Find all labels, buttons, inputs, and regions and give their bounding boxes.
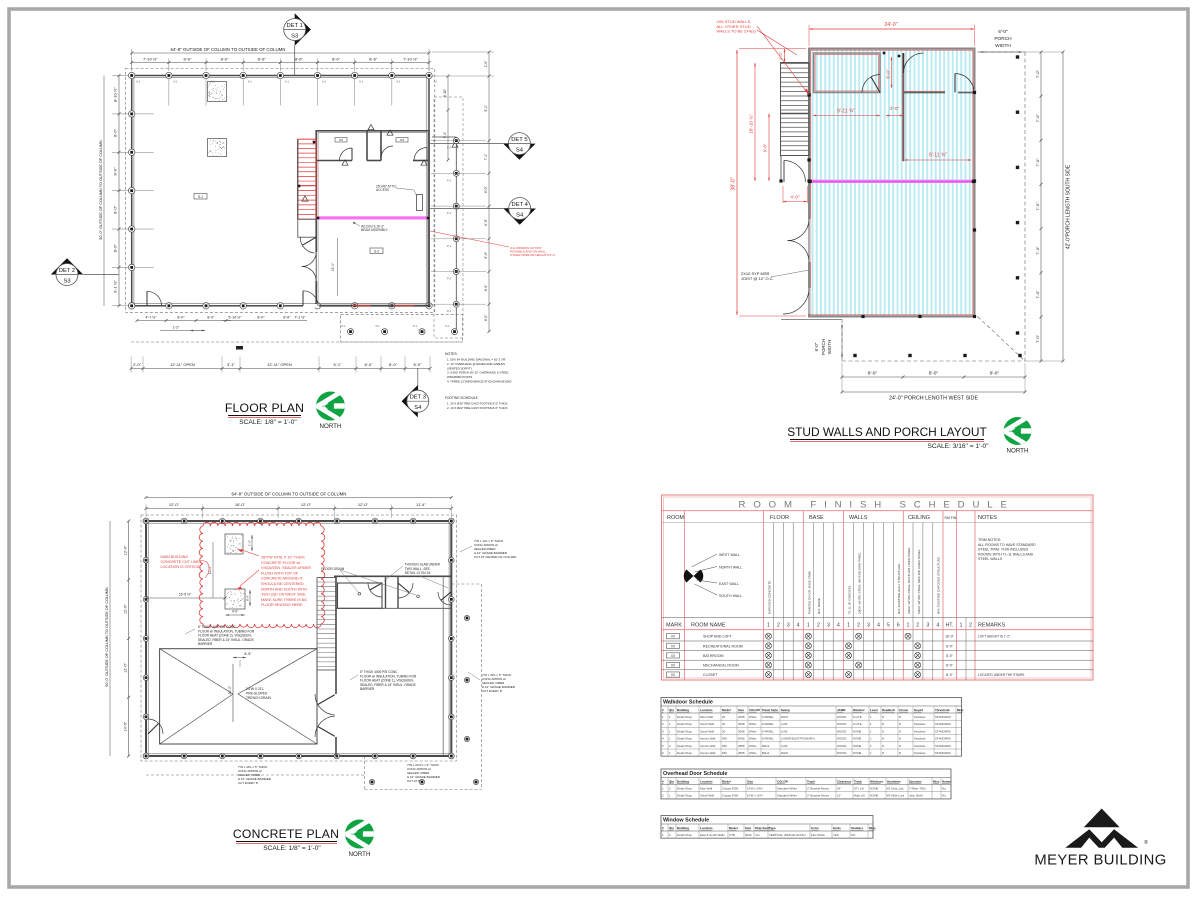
svg-text:SCALE: 3/16" = 1'-0": SCALE: 3/16" = 1'-0" [927, 443, 989, 450]
svg-text:8'-0": 8'-0" [113, 205, 118, 214]
svg-text:MECHANICAL ROOM: MECHANICAL ROOM [703, 664, 739, 668]
svg-text:4'-7 ½": 4'-7 ½" [145, 316, 157, 320]
svg-text:CEILING: CEILING [908, 515, 930, 521]
svg-text:Yes: Yes [755, 833, 760, 837]
svg-text:12'-0": 12'-0" [169, 502, 180, 507]
svg-text:STL Lift: STL Lift [854, 787, 864, 791]
svg-text:WEST WALL: WEST WALL [719, 553, 740, 557]
svg-text:8'-0": 8'-0" [946, 673, 954, 677]
svg-text:NONE: NONE [853, 729, 861, 733]
svg-text:LHIS: LHIS [781, 744, 787, 748]
svg-text:9'-1": 9'-1" [484, 104, 488, 111]
svg-text:N/A: NONE: N/A: NONE [817, 598, 821, 614]
svg-text:S4: S4 [414, 405, 422, 411]
svg-text:No: No [942, 787, 946, 791]
svg-text:DET 1: DET 1 [287, 23, 303, 29]
svg-text:S3: S3 [291, 34, 298, 40]
svg-text:CONCRETE FLOOR w/: CONCRETE FLOOR w/ [261, 561, 301, 565]
svg-text:38'-0": 38'-0" [731, 177, 737, 190]
svg-text:8'-0": 8'-0" [990, 371, 1000, 376]
svg-text:Kwickset: Kwickset [914, 744, 926, 748]
svg-text:Standard White: Standard White [777, 787, 797, 791]
svg-text:930: 930 [722, 751, 727, 755]
svg-text:3'-1": 3'-1" [227, 362, 236, 367]
svg-text:White: White [749, 722, 757, 726]
svg-text:NONE: NONE [870, 794, 878, 798]
svg-text:1: 1 [847, 623, 850, 629]
svg-text:4. THREE 12"WIND BRACE AT E: 4. THREE 12"WIND BRACE AT EXCHANGE END [447, 380, 511, 384]
svg-text:Jack Shaft: Jack Shaft [909, 794, 923, 798]
svg-text:Kwickset: Kwickset [914, 737, 926, 741]
svg-text:P-1: P-1 [445, 324, 450, 328]
svg-text:East Wall: East Wall [700, 787, 712, 791]
svg-text:MEYER BUILDING: MEYER BUILDING [1034, 853, 1166, 869]
svg-text:COLOR: COLOR [777, 780, 789, 784]
svg-text:16'-5 ½": 16'-5 ½" [179, 593, 192, 597]
svg-text:6-PANEL: 6-PANEL [762, 737, 774, 741]
svg-text:Detail Shop: Detail Shop [677, 722, 692, 726]
svg-text:6-PANEL: 6-PANEL [762, 715, 774, 719]
svg-text:8'-0": 8'-0" [946, 664, 954, 668]
svg-text:8'-0": 8'-0" [365, 362, 374, 367]
svg-text:STUD WALLS AND PORCH LAYOUT: STUD WALLS AND PORCH LAYOUT [787, 425, 987, 439]
svg-text:N: N [882, 737, 884, 741]
svg-text:Hardware: Hardware [887, 780, 901, 784]
svg-text:WOOD: WOOD [837, 722, 846, 726]
svg-text:PAINTED OR GR. BASE TRIM: PAINTED OR GR. BASE TRIM [807, 571, 811, 614]
svg-text:Kwickset: Kwickset [914, 729, 926, 733]
svg-text:2: 2 [857, 623, 860, 629]
svg-text:Misc: Misc [869, 826, 876, 830]
svg-text:#2 Strut_Lok: #2 Strut_Lok [887, 787, 904, 791]
svg-text:DET 3: DET 3 [410, 395, 426, 401]
svg-text:Overhead Door Schedule: Overhead Door Schedule [663, 771, 727, 777]
svg-text:T1-11 (8" GROOVE): T1-11 (8" GROOVE) [848, 586, 852, 614]
svg-text:N: N [899, 715, 901, 719]
svg-text:6'-1": 6'-1" [334, 362, 343, 367]
svg-text:NONE: NONE [870, 787, 878, 791]
svg-text:A-1: A-1 [359, 80, 364, 84]
svg-text:8'-0": 8'-0" [332, 57, 341, 62]
svg-text:T-Rider T501: T-Rider T501 [909, 787, 926, 791]
svg-text:Detail Shop: Detail Shop [677, 744, 692, 748]
svg-text:29GA. WHITE STEEL MAX-RIB LINE: 29GA. WHITE STEEL MAX-RIB LINER PANEL [917, 549, 921, 614]
svg-text:Qty: Qty [669, 826, 674, 830]
svg-text:12": 12" [837, 794, 841, 798]
svg-text:CUT EVERY 8': CUT EVERY 8' [238, 781, 259, 785]
svg-text:WOOD: WOOD [837, 729, 846, 733]
svg-text:N: N [899, 729, 901, 733]
svg-text:No: No [942, 794, 946, 798]
svg-text:2" Bracket Mount: 2" Bracket Mount [807, 794, 829, 798]
svg-text:South Wall: South Wall [700, 722, 714, 726]
svg-text:Detail Shop: Detail Shop [677, 833, 692, 837]
svg-text:MARK: MARK [666, 623, 682, 629]
svg-text:NORTH AND SOUTH WITH: NORTH AND SOUTH WITH [261, 587, 307, 591]
svg-text:White: White [749, 737, 757, 741]
svg-text:42'-0"PORCH LENGTH SOUTH SIDE: 42'-0"PORCH LENGTH SOUTH SIDE [1066, 164, 1072, 249]
svg-text:CLOSET: CLOSET [703, 673, 718, 677]
svg-text:8'-0": 8'-0" [221, 57, 230, 62]
svg-text:9'-11 ¾": 9'-11 ¾" [837, 109, 855, 115]
svg-text:12'-0": 12'-0" [124, 662, 128, 672]
svg-text:8'-6": 8'-6" [295, 57, 304, 62]
svg-text:BATHROOM: BATHROOM [703, 654, 724, 658]
svg-text:DET 4: DET 4 [512, 202, 529, 208]
svg-text:Model: Model [722, 708, 731, 712]
svg-text:Track: Track [854, 780, 862, 784]
svg-text:A-1: A-1 [248, 80, 253, 84]
svg-text:3068: 3068 [738, 715, 745, 719]
svg-text:12'-0": 12'-0" [301, 502, 312, 507]
svg-text:2: 2 [916, 623, 919, 629]
svg-text:Blank: Blank [762, 744, 770, 748]
svg-text:P-1: P-1 [447, 309, 452, 313]
svg-text:Grids: Grids [833, 826, 841, 830]
svg-text:N: N [882, 729, 884, 733]
svg-text:SCALE: 1/8" = 1'-0": SCALE: 1/8" = 1'-0" [263, 845, 321, 852]
svg-text:Blank: Blank [762, 751, 770, 755]
svg-text:VERTICAL (SINGLE HUNG): VERTICAL (SINGLE HUNG) [769, 833, 806, 837]
svg-text:WOOD: WOOD [837, 751, 846, 755]
svg-text:Location: Location [700, 826, 713, 830]
svg-text:RHIS: RHIS [781, 715, 788, 719]
svg-text:P-1: P-1 [447, 178, 452, 182]
svg-text:Operator: Operator [909, 780, 923, 784]
svg-text:4: 4 [877, 623, 880, 629]
svg-text:2. 10 X Ø22" PRE-CAST FOOTI: 2. 10 X Ø22" PRE-CAST FOOTINGS 6" THICK [447, 406, 508, 410]
svg-text:6-PANEL: 6-PANEL [762, 722, 774, 726]
svg-text:TRIM NOTES:: TRIM NOTES: [978, 538, 1001, 542]
svg-text:White: White [749, 751, 757, 755]
svg-text:3: 3 [787, 623, 790, 629]
svg-text:East & South Walls: East & South Walls [700, 833, 725, 837]
svg-text:P-1: P-1 [341, 324, 346, 328]
svg-text:9'-8": 9'-8" [763, 143, 768, 152]
svg-text:A-1: A-1 [173, 80, 178, 84]
svg-text:STANDARD: STANDARD [935, 715, 951, 719]
svg-text:Track: Track [807, 780, 815, 784]
svg-text:NORTH: NORTH [320, 423, 342, 430]
svg-text:8'-10": 8'-10" [443, 89, 447, 97]
svg-text:2. 12" OVERHANG @ EAVES AND: 2. 12" OVERHANG @ EAVES AND GABLES [447, 362, 505, 366]
svg-text:7'-0": 7'-0" [1035, 246, 1040, 255]
svg-text:8'-0": 8'-0" [484, 218, 488, 225]
svg-text:2: 2 [969, 623, 972, 629]
svg-text:ACCESS: ACCESS [376, 188, 389, 192]
svg-text:CONCRETE CUT LINES,: CONCRETE CUT LINES, [161, 560, 203, 564]
svg-text:FOOTING SCHEDULE: FOOTING SCHEDULE [445, 396, 478, 400]
svg-text:FLUSH WITH TOP OF: FLUSH WITH TOP OF [261, 571, 299, 575]
svg-text:PRE-SLOPED: PRE-SLOPED [246, 691, 268, 695]
svg-text:6-PANEL: 6-PANEL [762, 729, 774, 733]
svg-text:N: N [899, 751, 901, 755]
svg-text:Detail Shop: Detail Shop [677, 737, 692, 741]
svg-text:20: 20 [722, 715, 726, 719]
svg-text:DET 5: DET 5 [511, 137, 527, 143]
svg-text:Kwickset: Kwickset [914, 715, 926, 719]
svg-text:4: 4 [797, 623, 800, 629]
svg-text:8'-6": 8'-6" [246, 595, 250, 601]
svg-text:Location: Location [700, 708, 713, 712]
svg-text:Location: Location [700, 780, 713, 784]
svg-text:N: N [899, 737, 901, 741]
svg-text:12'-11" OPEN: 12'-11" OPEN [170, 362, 195, 367]
svg-text:1: 1 [767, 623, 770, 629]
svg-text:4'-0": 4'-0" [790, 195, 800, 200]
svg-text:Building: Building [677, 826, 689, 830]
svg-text:6068: 6068 [738, 737, 745, 741]
svg-text:8'-0": 8'-0" [868, 371, 878, 376]
svg-text:FLOOR HEATING HERE.: FLOOR HEATING HERE. [261, 603, 303, 607]
svg-text:Misc: Misc [957, 708, 964, 712]
svg-text:CUT AT CENTER OF COLUMN: CUT AT CENTER OF COLUMN [474, 555, 516, 559]
svg-text:ROOM: ROOM [667, 515, 685, 521]
svg-text:White: White [749, 744, 757, 748]
svg-text:28'4"W X4'5L X 10" THICK: 28'4"W X4'5L X 10" THICK [261, 556, 305, 560]
svg-text:HT.: HT. [946, 623, 954, 629]
svg-text:A-1: A-1 [285, 80, 290, 84]
svg-text:STEEL WALLS: STEEL WALLS [978, 557, 1003, 561]
svg-text:3068: 3068 [738, 729, 745, 733]
svg-text:12'-0": 12'-0" [358, 502, 369, 507]
svg-text:6'-0": 6'-0" [814, 342, 819, 351]
svg-text:High Lift: High Lift [854, 794, 865, 798]
svg-text:NONE: NONE [853, 744, 861, 748]
svg-text:SHOULD BE CENTERED: SHOULD BE CENTERED [261, 582, 304, 586]
svg-text:24"W X 21'L: 24"W X 21'L [246, 687, 264, 691]
svg-text:9'-4": 9'-4" [443, 132, 447, 138]
svg-text:LOCATED UNDER THE STAIRS: LOCATED UNDER THE STAIRS [978, 673, 1024, 677]
svg-text:(VENTED SOFFIT): (VENTED SOFFIT) [447, 366, 472, 370]
svg-text:Shutters: Shutters [851, 826, 864, 830]
svg-text:VISQUEEN, SEALER &FIBER: VISQUEEN, SEALER &FIBER [261, 566, 311, 570]
svg-text:RHIS: RHIS [781, 751, 788, 755]
svg-text:N/A: EXISTING EXPOSED STRUCTUR: N/A: EXISTING EXPOSED STRUCTURE [937, 557, 941, 614]
svg-text:BASE: BASE [809, 515, 824, 521]
svg-text:Interior Wall: Interior Wall [700, 737, 716, 741]
svg-text:2'-0": 2'-0" [778, 51, 783, 60]
svg-text:1: 1 [907, 623, 910, 629]
svg-text:12'-0": 12'-0" [124, 545, 128, 555]
svg-text:WOOD: WOOD [837, 737, 846, 741]
svg-text:JOIST @ 12" O.C.: JOIST @ 12" O.C. [741, 276, 774, 281]
svg-text:Building: Building [677, 708, 689, 712]
svg-text:N: N [899, 744, 901, 748]
svg-text:CONCRETE AROUND IT,: CONCRETE AROUND IT, [261, 577, 304, 581]
svg-text:SOUTH WALL: SOUTH WALL [719, 594, 742, 598]
svg-text:ROOM NAME: ROOM NAME [691, 623, 726, 629]
svg-text:Size: Size [738, 708, 744, 712]
svg-text:JAMB: JAMB [837, 708, 846, 712]
svg-text:S3: S3 [63, 279, 70, 285]
svg-text:3: 3 [867, 623, 870, 629]
svg-text:29GA. WHITE STEEL AW-EXB GRIB: 29GA. WHITE STEEL AW-EXB GRIB PANEL [857, 552, 861, 614]
svg-text:4: 4 [837, 623, 840, 629]
svg-text:Ship Sash: Ship Sash [755, 826, 770, 830]
svg-text:8'-0": 8'-0" [389, 362, 398, 367]
svg-text:EAST WALL: EAST WALL [719, 582, 739, 586]
svg-text:Detail Shop: Detail Shop [677, 751, 692, 755]
svg-text:PORCH: PORCH [821, 339, 826, 355]
svg-text:3068: 3068 [738, 722, 745, 726]
svg-text:A-1: A-1 [434, 80, 439, 84]
svg-text:8'-0": 8'-0" [484, 314, 488, 321]
svg-text:Misc: Misc [933, 780, 940, 784]
svg-text:RECREATIONAL ROOM: RECREATIONAL ROOM [703, 644, 743, 648]
svg-text:A-1: A-1 [322, 80, 327, 84]
svg-text:S-1: S-1 [198, 195, 203, 199]
svg-text:NO: NO [851, 833, 856, 837]
svg-text:P-1: P-1 [447, 244, 452, 248]
svg-text:WRAPPED POSTS: WRAPPED POSTS [447, 375, 472, 379]
svg-text:STANDARD: STANDARD [935, 722, 951, 726]
svg-text:NOTES: NOTES [978, 515, 997, 521]
svg-text:Kwickset: Kwickset [914, 722, 926, 726]
svg-text:LOFT HEIGHT IS 7'-2": LOFT HEIGHT IS 7'-2" [978, 635, 1010, 639]
svg-text:8'-0": 8'-0" [414, 362, 423, 367]
svg-text:Interior Wall: Interior Wall [700, 751, 716, 755]
svg-text:NORTH: NORTH [349, 851, 371, 858]
svg-text:CTB: CTB [729, 833, 735, 837]
svg-text:STANDARD: STANDARD [935, 729, 951, 733]
svg-text:OTHER WINDOW HEIGHTS 5'-0": OTHER WINDOW HEIGHTS 5'-0" [510, 253, 555, 257]
svg-text:Deadbolt: Deadbolt [882, 708, 895, 712]
svg-text:P-1: P-1 [413, 324, 418, 328]
svg-text:EXPOSED CONCRETE: EXPOSED CONCRETE [767, 581, 771, 614]
svg-text:LHIS/RHIS(STATIONARY): LHIS/RHIS(STATIONARY) [781, 737, 815, 741]
svg-text:Detail Shop: Detail Shop [677, 787, 692, 791]
svg-text:1. 29 X Ø30" PRE-CAST FOOTI: 1. 29 X Ø30" PRE-CAST FOOTINGS 5" THICK [447, 402, 508, 406]
svg-text:S4: S4 [516, 148, 524, 154]
svg-text:###: ### [339, 138, 344, 142]
svg-text:2868: 2868 [738, 744, 745, 748]
svg-text:NORTH WALL: NORTH WALL [719, 566, 742, 570]
svg-text:8'-0": 8'-0" [113, 129, 118, 138]
svg-text:3: 3 [927, 623, 930, 629]
svg-text:10'W x 10'H: 10'W x 10'H [747, 794, 762, 798]
svg-text:P-1: P-1 [447, 277, 452, 281]
svg-text:###: ### [400, 138, 405, 142]
svg-text:1'-6": 1'-6" [248, 540, 252, 546]
svg-text:N: N [899, 722, 901, 726]
svg-text:NONE: NONE [853, 737, 861, 741]
svg-text:Standard White: Standard White [777, 794, 797, 798]
svg-text:12'-0": 12'-0" [124, 604, 128, 614]
svg-text:DETAIL 13 ON S4: DETAIL 13 ON S4 [405, 571, 431, 575]
svg-text:White: White [749, 729, 757, 733]
svg-text:West Wall: West Wall [700, 715, 713, 719]
svg-text:1: 1 [807, 623, 810, 629]
svg-text:P-1: P-1 [447, 211, 452, 215]
svg-text:Closer: Closer [899, 708, 909, 712]
svg-text:Swing: Swing [781, 708, 790, 712]
svg-text:24": 24" [837, 787, 841, 791]
svg-text:14'W x 14'H: 14'W x 14'H [747, 787, 762, 791]
svg-text:1. 50'X 64' BUILDING DIAGON: 1. 50'X 64' BUILDING DIAGONAL = 81'-2 7/… [447, 358, 506, 362]
svg-text:7'-10 ½": 7'-10 ½" [143, 57, 158, 62]
svg-text:WALLS TO BE 2X4(s): WALLS TO BE 2X4(s) [717, 29, 757, 34]
svg-text:S-2: S-2 [374, 249, 379, 253]
svg-text:8'-0": 8'-0" [113, 167, 118, 176]
svg-text:8'-0": 8'-0" [929, 371, 939, 376]
svg-text:8'-0": 8'-0" [484, 186, 488, 193]
svg-text:7'-1 ½": 7'-1 ½" [294, 316, 306, 320]
svg-text:5'-10 ½": 5'-10 ½" [228, 316, 242, 320]
svg-text:3: 3 [827, 623, 830, 629]
svg-text:S4: S4 [516, 213, 524, 219]
svg-text:8'-0": 8'-0" [946, 654, 954, 658]
svg-text:2868: 2868 [738, 751, 745, 755]
svg-text:1'-0": 1'-0" [484, 60, 488, 67]
svg-text:Flex-White: Flex-White [811, 833, 825, 837]
svg-text:NONE: NONE [853, 751, 861, 755]
svg-text:Level: Level [870, 708, 878, 712]
svg-text:SHOP AND LOFT: SHOP AND LOFT [703, 635, 732, 639]
svg-text:WIDTH: WIDTH [995, 43, 1011, 49]
svg-text:Window: Window [853, 708, 865, 712]
svg-text:30'-0": 30'-0" [228, 685, 232, 694]
svg-text:9'-1 ½": 9'-1 ½" [113, 280, 118, 293]
svg-text:Qty: Qty [669, 708, 674, 712]
svg-text:MAIN BUILDING: MAIN BUILDING [161, 555, 189, 559]
svg-text:12'-4": 12'-4" [208, 566, 212, 574]
svg-text:LHIS: LHIS [781, 722, 787, 726]
svg-text:WOOD: WOOD [837, 715, 846, 719]
svg-text:8'-10 ½": 8'-10 ½" [113, 87, 118, 102]
svg-text:N: N [882, 715, 884, 719]
svg-text:4'-0": 4'-0" [232, 610, 238, 614]
svg-text:Detail Shop: Detail Shop [677, 794, 692, 798]
svg-text:7'-0": 7'-0" [1035, 290, 1040, 299]
svg-text:Panel Style: Panel Style [762, 708, 778, 712]
svg-text:8'-0": 8'-0" [484, 284, 488, 291]
svg-text:9-LITE: 9-LITE [853, 722, 862, 726]
svg-text:Clopay 4300: Clopay 4300 [722, 787, 739, 791]
svg-text:2'-0": 2'-0" [133, 362, 142, 367]
svg-text:8'-5": 8'-5" [244, 652, 252, 656]
svg-text:CUT EVERY 8': CUT EVERY 8' [482, 689, 503, 693]
svg-text:8'-6": 8'-6" [258, 57, 267, 62]
svg-text:WIDTH: WIDTH [827, 340, 832, 354]
svg-text:5: 5 [887, 623, 890, 629]
svg-text:Windows: Windows [870, 780, 883, 784]
svg-text:7'-0": 7'-0" [1035, 334, 1040, 343]
svg-text:White: White [749, 715, 757, 719]
svg-text:FLOOR: FLOOR [770, 515, 789, 521]
svg-text:7'-0": 7'-0" [1035, 158, 1040, 167]
svg-text:Keyed: Keyed [914, 708, 923, 712]
svg-text:#3 Slide Lock: #3 Slide Lock [887, 794, 905, 798]
svg-text:TRENCH DRAIN: TRENCH DRAIN [246, 696, 272, 700]
svg-text:Walkdoor Schedule: Walkdoor Schedule [663, 700, 713, 706]
svg-text:9-LITE: 9-LITE [853, 715, 862, 719]
svg-text:N: N [882, 722, 884, 726]
svg-text:1: 1 [960, 623, 963, 629]
svg-text:20: 20 [722, 722, 726, 726]
svg-text:2: 2 [817, 623, 820, 629]
svg-text:P-1: P-1 [447, 146, 452, 150]
svg-text:LHIS: LHIS [781, 729, 787, 733]
svg-text:N/A: EXISTING WALL STRUCTURE: N/A: EXISTING WALL STRUCTURE [897, 564, 901, 614]
svg-text:ALL ROOMS TO HAVE STANDARD: ALL ROOMS TO HAVE STANDARD [978, 543, 1036, 547]
svg-text:8'-0": 8'-0" [257, 316, 265, 320]
svg-text:YES: YES [833, 833, 839, 837]
svg-text:R O O M F I N I S H S C H: R O O M F I N I S H S C H E D U L E [739, 500, 1010, 511]
svg-text:CONCRETE PLAN: CONCRETE PLAN [233, 827, 339, 841]
svg-text:STEEL TRIM. THIS INCLUDES: STEEL TRIM. THIS INCLUDES [978, 548, 1029, 552]
svg-text:NORTH: NORTH [1007, 448, 1029, 455]
